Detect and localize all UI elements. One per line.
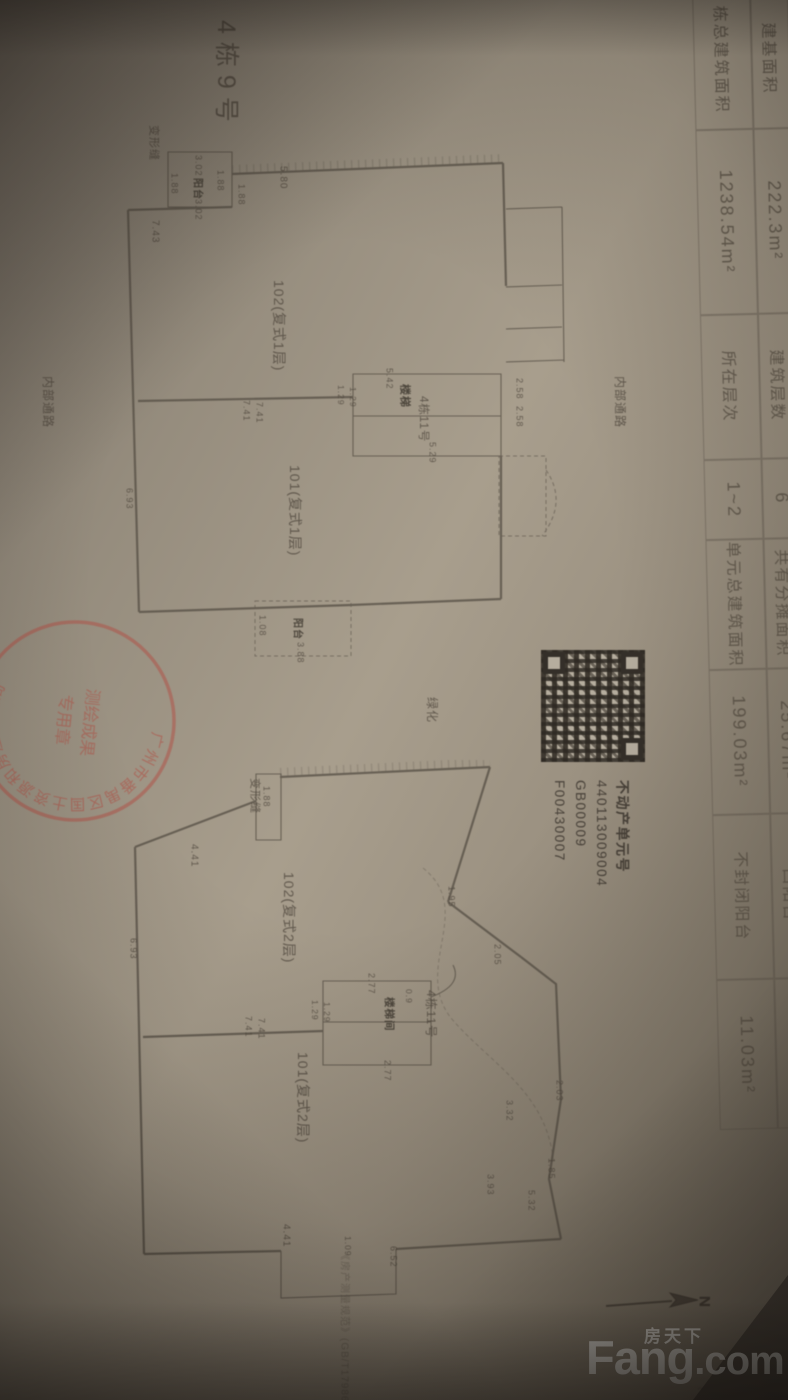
table-label: 凹阳台 [779,868,788,923]
official-seal-stamp: 广州市番禺区国土资源和房屋管理局 测绘成果 专用章 [0,612,184,830]
dim-label: 7.41 [243,1016,253,1038]
table-value: 6 [771,492,788,505]
dim-label: 6.93 [124,488,134,510]
dim-label: 1.88 [261,786,271,808]
table-value: 199.03m² [728,696,751,789]
dim-label: 2.77 [382,1060,392,1082]
qr-finder-icon [621,652,643,674]
unit-code-2: F00430007 [548,780,569,887]
room-label: 楼梯 [398,384,411,408]
table-label: 单元总建筑面积 [723,541,750,668]
dim-label: 5.32 [526,1190,536,1212]
table-value: 11.03m² [736,1015,759,1094]
table-label: 栋总建筑面积 [709,5,736,114]
room-label: 101(复式2层) [295,1052,311,1143]
table-value: 25.67m² [776,700,788,781]
table-label: 不封闭阳台 [730,852,756,943]
dim-label: 3.93 [485,1174,495,1196]
dim-label: 2.58 [514,378,524,400]
table-label: 所在层次 [718,351,744,424]
table-value: 1~2 [723,481,745,518]
dim-label: 2.03 [554,1080,564,1102]
svg-text:测绘成果: 测绘成果 [76,688,102,758]
qr-code [541,650,645,762]
dim-label: 1.88 [236,184,246,206]
dim-label: 1.08 [257,615,267,637]
north-label: N [696,1296,710,1307]
table-value: 222.3m² [763,181,786,262]
unit-code-1: GB00009 [569,780,590,887]
dim-label: 4.41 [188,844,200,867]
room-label: 阳台 [291,618,303,640]
dim-label: 3.32 [504,1100,514,1122]
svg-text:专用章: 专用章 [51,693,75,746]
table-label: 共有分摊面积 [771,549,788,658]
dim-label: 1.88 [215,170,225,192]
sheet-title-label: 4栋9号 [211,20,240,130]
dim-label: 5.80 [277,166,289,189]
property-document-photo: 栋总建筑面积 1238.54m² 所在层次 1~2 单元总建筑面积 199.03… [0,0,788,1400]
dim-label: 7.41 [254,402,264,424]
dim-label: 1.29 [309,1000,319,1021]
dim-label: 2.77 [366,973,376,995]
dim-label: 1.88 [169,173,179,195]
internal-road-label: 内部通路 [40,376,54,428]
dim-label: 6.52 [388,1246,398,1268]
dim-label: 1.85 [546,1158,556,1180]
dim-label: 2.05 [492,944,502,966]
dim-label: 1.29 [335,385,345,406]
expansion-joint-label: 变形缝 [248,778,261,814]
dim-label: 1.29 [347,387,357,408]
unit-number-caption: 不动产单元号 440113009004 GB00009 F00430007 [548,780,632,940]
unit-number-value: 440113009004 [590,780,611,887]
dim-label: 5.29 [427,442,437,464]
note-text: 《房产测量规范》(GB/T17986.1-20 [338,1250,350,1400]
dim-label: 7.41 [256,1018,266,1040]
room-label: 楼梯间 [383,997,395,1032]
qr-finder-icon [621,738,643,760]
expansion-joint-label: 变形缝 [147,125,160,161]
dim-label: 1.95 [446,886,456,908]
room-label: 102(复式2层) [281,872,297,963]
dim-label: 3.02 [193,199,203,221]
area-info-table: 栋总建筑面积 1238.54m² 所在层次 1~2 单元总建筑面积 199.03… [692,0,788,1132]
fang-watermark: 房天下 Fang.com [586,1322,786,1388]
dim-label: 3.88 [295,642,305,664]
floor-plan-level2-drawing [120,760,580,1310]
dim-label: 1.29 [321,1002,331,1023]
dim-label: 5.42 [384,368,394,390]
dim-label: 3.02 [193,155,203,177]
unit-label: 4栋11号 [416,396,429,442]
dim-label: 7.43 [149,220,161,243]
room-label: 102(复式1层) [271,280,287,371]
unit-label: 4栋11号 [423,990,437,1038]
room-label: 阳台 [191,178,203,200]
table-label: 建筑层数 [766,350,788,423]
dim-label: 0.9 [403,989,413,1004]
dim-label: 6.93 [128,938,138,960]
qr-finder-icon [543,652,565,674]
unit-number-title: 不动产单元号 [611,780,633,887]
internal-road-label: 内部通路 [612,376,626,428]
dim-label: 7.41 [241,400,251,422]
dim-label: 1.09 [342,1236,352,1257]
table-value: 1238.54m² [715,170,739,275]
table-label: 建基面积 [758,22,784,95]
north-arrow-icon: N [600,1276,710,1328]
watermark-logo-text: Fang.com [586,1334,784,1381]
document-sheet: 栋总建筑面积 1238.54m² 所在层次 1~2 单元总建筑面积 199.03… [0,0,788,1400]
table-value: 0.00m² [784,1019,788,1088]
greenery-label: 绿化 [424,697,438,723]
room-label: 101(复式1层) [287,465,303,556]
dim-label: 2.58 [514,406,524,428]
dim-label: 4.41 [280,1224,292,1247]
